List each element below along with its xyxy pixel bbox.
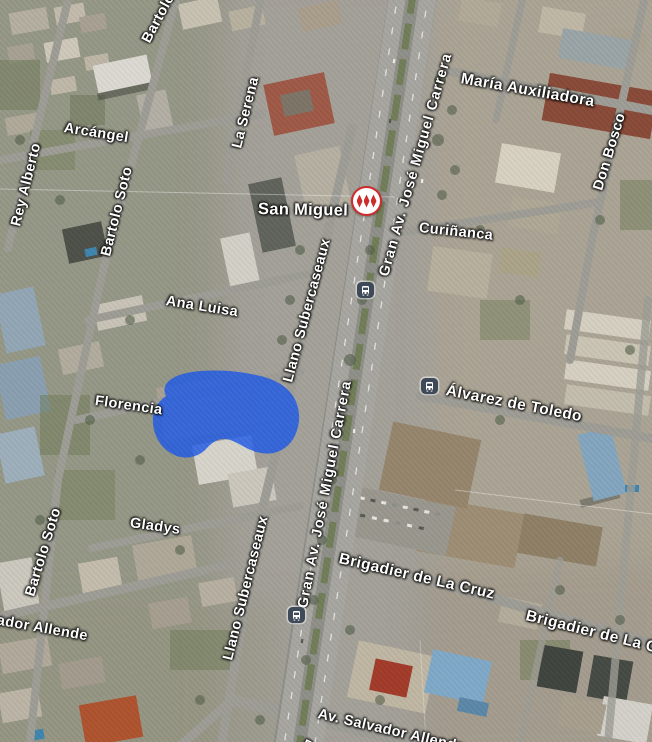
metro-diamond [357,195,363,208]
metro-diamond [364,195,370,208]
bus-stop-icon[interactable] [357,282,374,298]
metro-diamond [371,195,377,208]
bus-glyph [424,381,435,392]
bus-stop-icon[interactable] [421,378,438,394]
station-label-san-miguel[interactable]: San Miguel [258,200,348,221]
satellite-base [0,0,652,742]
bus-stop-icon[interactable] [288,607,305,623]
metro-station-icon[interactable] [351,186,382,216]
map-canvas[interactable]: Arcángel Rey Alberto Bartolo Soto Bartol… [0,0,652,742]
bus-glyph [360,285,371,296]
bus-glyph [291,610,302,621]
